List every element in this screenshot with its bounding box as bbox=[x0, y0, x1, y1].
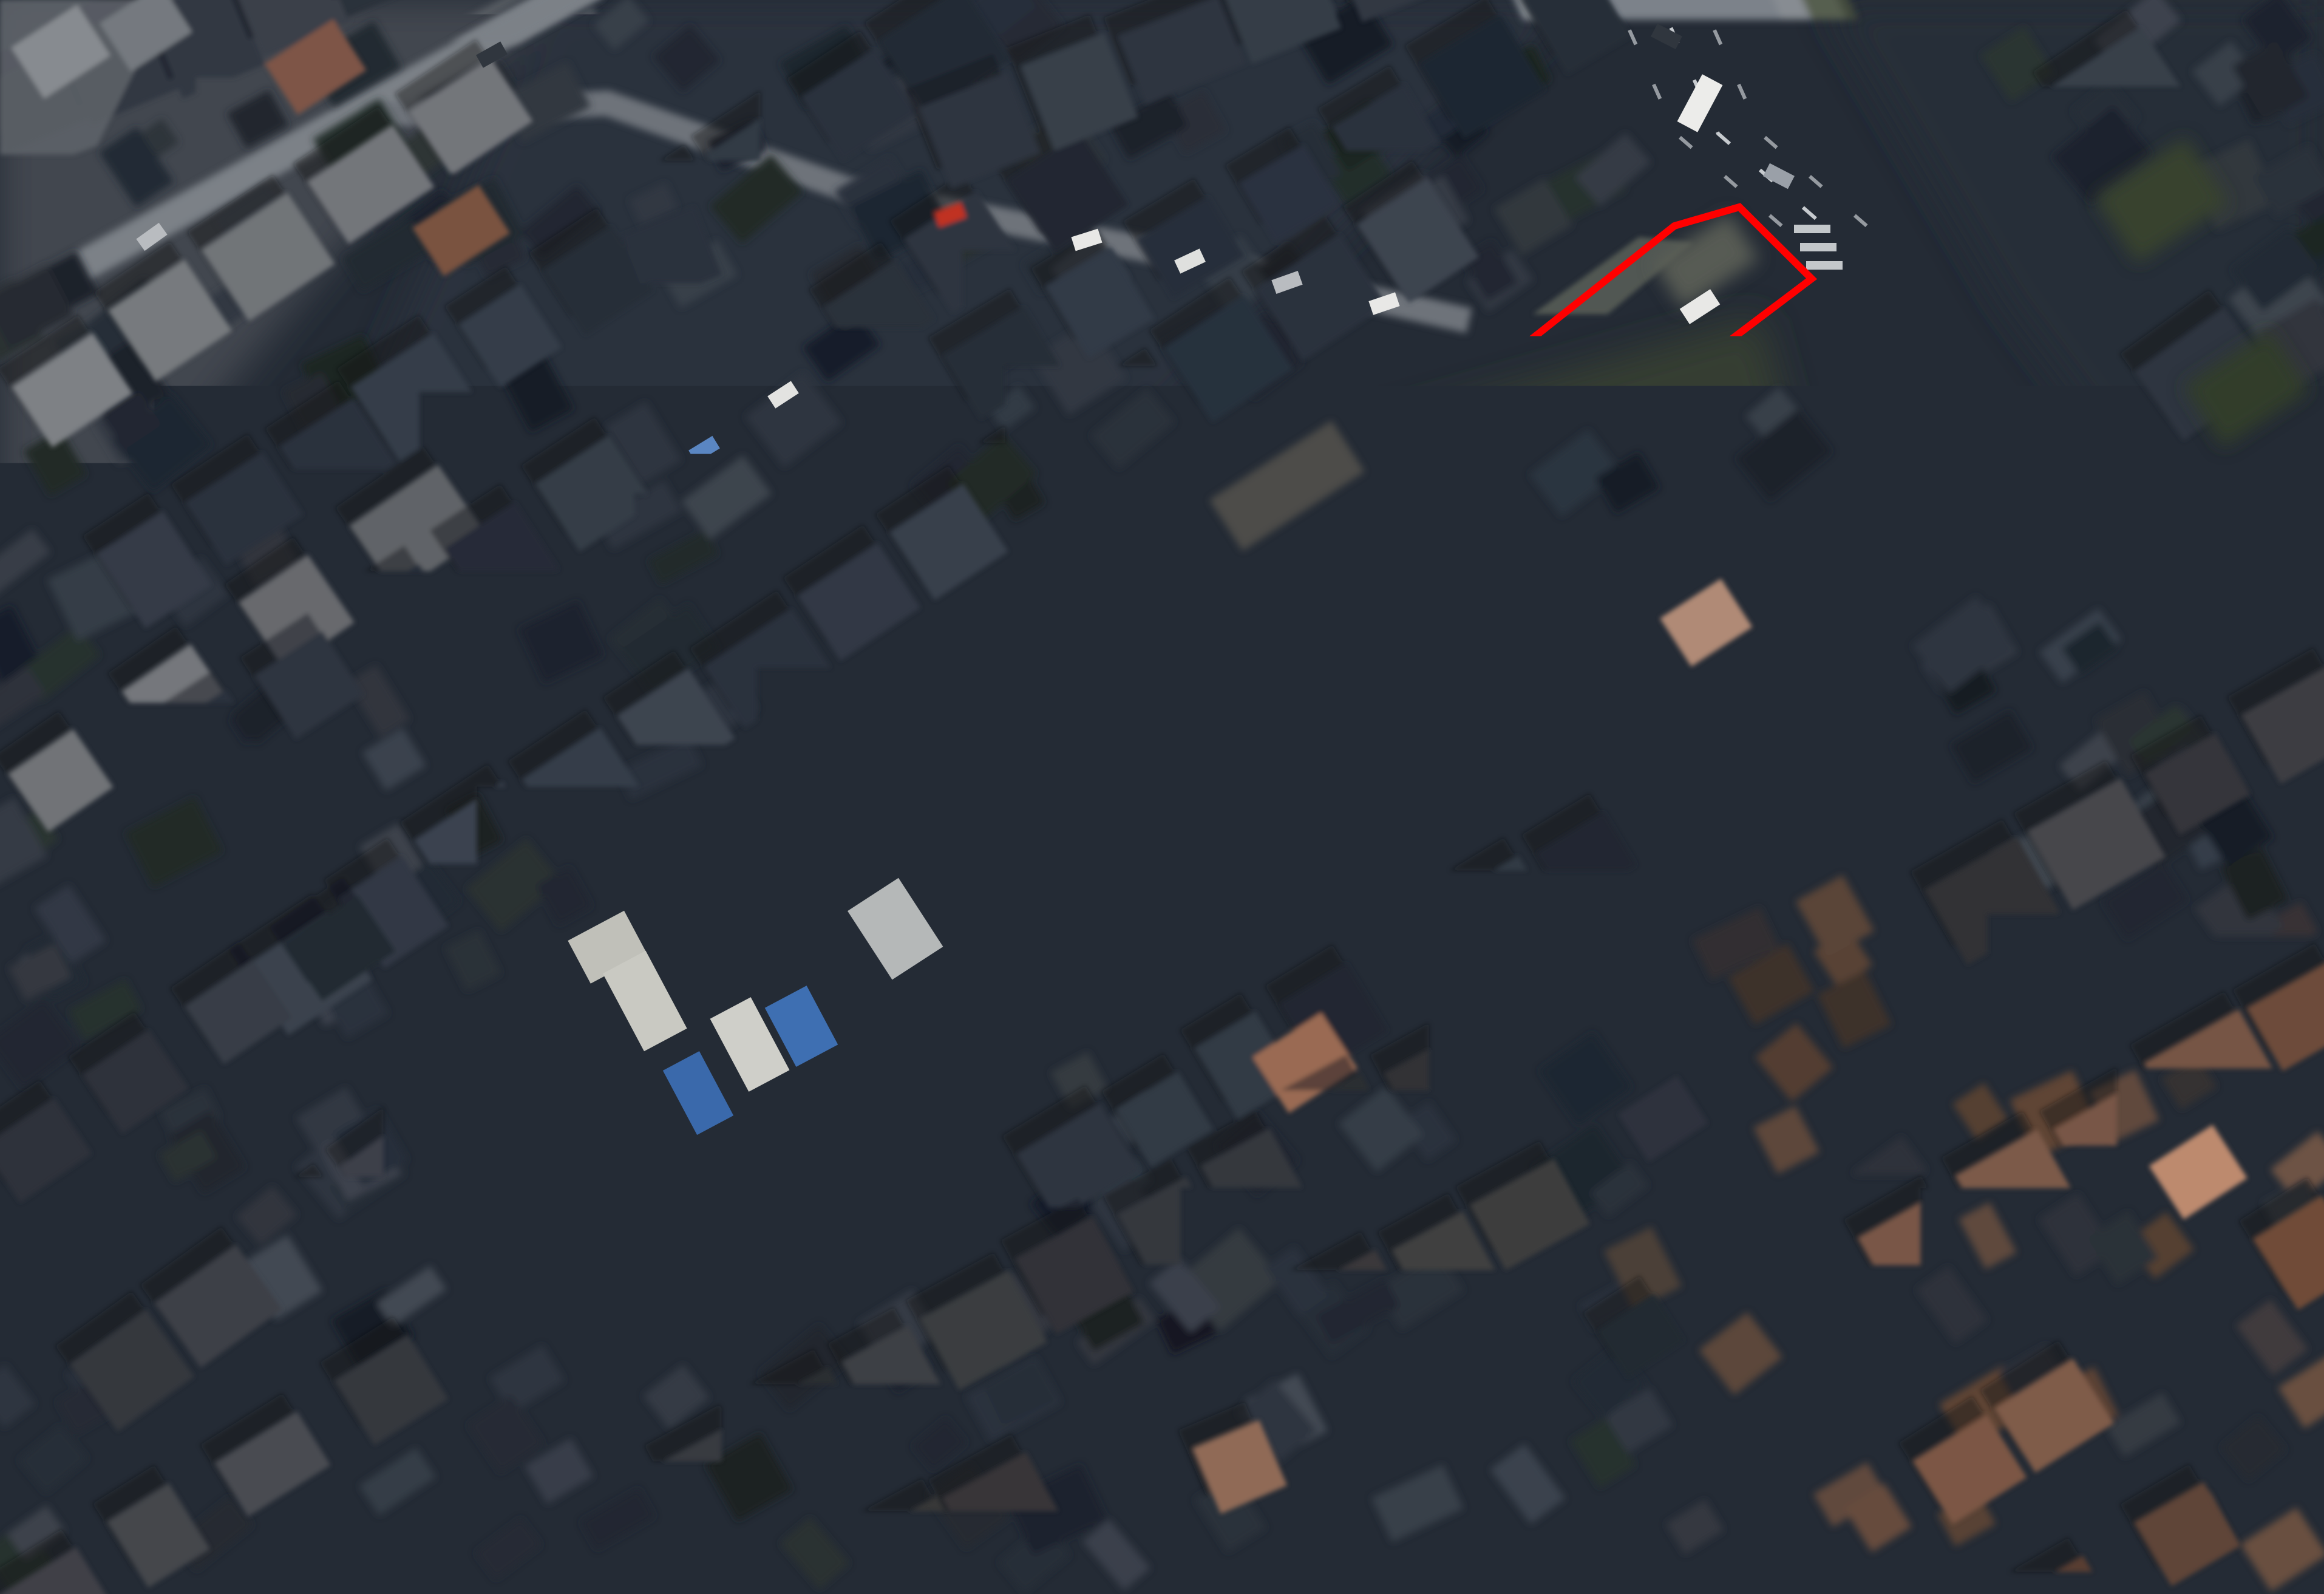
svg-text:100 m: 100 m bbox=[809, 1522, 925, 1565]
svg-text:© Crown Copyright and database: © Crown Copyright and database rights 20… bbox=[1284, 1545, 2310, 1584]
svg-text:0: 0 bbox=[5, 1522, 28, 1565]
svg-text:50 m: 50 m bbox=[390, 1522, 483, 1565]
